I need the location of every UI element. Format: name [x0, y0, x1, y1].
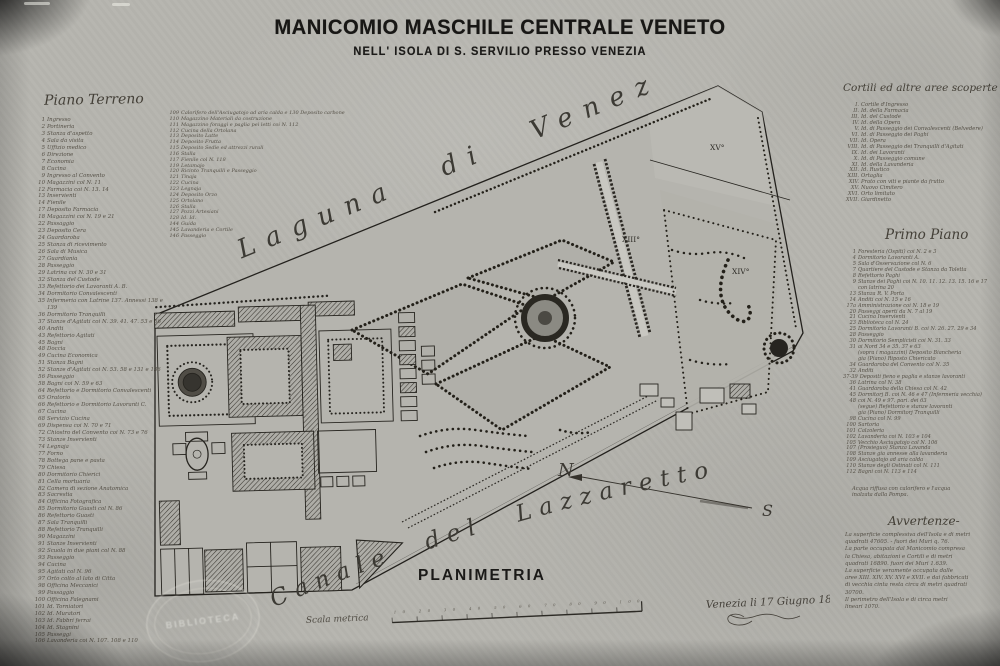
item-number: 105	[32, 632, 45, 639]
item-number: 58	[32, 381, 45, 388]
item-label: Stanze d'Agitati coi N. 53. 58 e 131 e 1…	[47, 367, 161, 374]
list-item: 94 Cucina	[32, 562, 172, 569]
list-item: 25 Stanza di ricevimento	[32, 242, 172, 249]
avvertenze-line: aree XIII. XIV. XV. XVI e XVII. e dai fa…	[845, 575, 995, 582]
list-item: 83 Sacrestia	[32, 492, 172, 499]
item-number: 98	[32, 583, 45, 590]
avvertenze-line: quadrati 47605. - fuori dei Muri q. 76.	[845, 539, 995, 546]
title-block: MANICOMIO MASCHILE CENTRALE VENETO NELL'…	[0, 15, 1000, 58]
item-number: 17	[32, 207, 45, 214]
item-label: Id. Muratori	[47, 611, 81, 618]
list-item: 28 Passeggio	[32, 263, 172, 270]
date-line: Venezia li 17 Giugno 1882	[706, 593, 830, 611]
avvertenze-line: La superficie veramente occupata dalle	[845, 568, 995, 575]
list-item: 23 Deposito Cera	[32, 228, 172, 235]
avvertenze-line: La superficie complessiva dell'Isola e d…	[845, 532, 995, 539]
item-label: Latrina coi N. 30 e 31	[47, 270, 107, 277]
piano-terreno-list: 1 Ingresso 2 Portineria 3 Stanza d'aspet…	[32, 117, 172, 645]
item-label: Magazzini coi N. 19 e 21	[47, 214, 115, 221]
item-number: 5	[32, 145, 45, 152]
list-item: 72 Chiostro del Convento coi N. 73 e 76	[32, 430, 172, 437]
item-number: 97	[32, 576, 45, 583]
item-number: 81	[32, 479, 45, 486]
item-number: 2	[32, 124, 45, 131]
item-label: Cucina	[47, 562, 66, 569]
item-number: 1	[32, 117, 45, 124]
page-subtitle: NELL' ISOLA DI S. SERVILIO PRESSO VENEZI…	[20, 46, 980, 58]
list-item: 9 Ingresso al Convento	[32, 173, 172, 180]
item-number: 26	[32, 249, 45, 256]
list-item: 33 Refettorio dei Lavoranti A. B.	[32, 284, 172, 291]
list-item: 88 Refettorio Tranquilli	[32, 527, 172, 534]
item-label: Orto colto al lato di Citta	[47, 576, 115, 583]
item-label: Refettorio e Dormitorio Lavoranti C.	[47, 402, 146, 409]
list-item: 146 Passeggio	[166, 234, 366, 240]
item-number: 93	[32, 555, 45, 562]
list-item: 40 Anditi	[32, 326, 172, 333]
stamp-text: BIBLIOTECA	[165, 611, 241, 630]
item-label: Refettorio Guasti	[47, 513, 94, 520]
list-item: 36 Dormitorio Tranquilli	[32, 312, 172, 319]
item-number: 69	[32, 423, 45, 430]
list-item: 13 Inservienti	[32, 193, 172, 200]
item-number: 66	[32, 402, 45, 409]
item-number: 9	[843, 280, 856, 286]
item-number: 31	[843, 345, 856, 351]
list-item: 93 Passeggio	[32, 555, 172, 562]
list-item: 77 Forno	[32, 451, 172, 458]
item-label: Stanza del Custode	[47, 277, 100, 284]
list-item: 12 Farmacia coi N. 13. 14	[32, 187, 172, 194]
area-label-xiv: XIV°	[732, 267, 750, 276]
list-item: 80 Dormitorio Chierici	[32, 472, 172, 479]
list-item: 97 Orto colto al lato di Citta	[32, 576, 172, 583]
item-number: 67	[32, 409, 45, 416]
item-number: 112	[843, 470, 856, 476]
item-label: Camera di sezione Anatomica	[47, 486, 128, 493]
item-number: 8	[32, 166, 45, 173]
item-number: 48	[843, 399, 856, 405]
list-item: 87 Sala Tranquilli	[32, 520, 172, 527]
item-label: Ingresso	[47, 117, 71, 124]
item-label: Agitati col N. 96	[47, 569, 91, 576]
item-label: Refettorio Tranquilli	[47, 527, 103, 534]
list-item: 112 Bagni coi N. 113 e 114	[843, 470, 995, 476]
item-label: Id. Stagnini	[47, 625, 79, 632]
nota-block: Acqua riffusa con calorifero e l'acquain…	[852, 486, 992, 499]
item-number: 48	[32, 346, 45, 353]
primo-piano-header: Primo Piano	[885, 227, 968, 243]
item-label: Bagni	[47, 340, 63, 347]
item-number: 77	[32, 451, 45, 458]
item-label: Deposito Farmacia	[47, 207, 98, 214]
list-item: 84 Officina Fotografica	[32, 499, 172, 506]
item-label: Refettorio Agitati	[47, 333, 95, 340]
avvertenze-line: 30700.	[845, 590, 995, 597]
list-item: 95 Agitati col N. 96	[32, 569, 172, 576]
item-label: Refettorio e Dormitorio Convalescenti	[47, 388, 151, 395]
item-number: 102	[32, 611, 45, 618]
item-label: Stanze dei Paghi coi N. 10. 11. 12. 13. …	[858, 280, 995, 292]
avvertenze-header: Avvertenze-	[888, 514, 960, 528]
item-number: 51	[32, 360, 45, 367]
scale-label: Scala metrica	[306, 613, 369, 626]
item-label: Uffizio medico	[47, 145, 86, 152]
list-item: 51 Stanza Bagni	[32, 360, 172, 367]
item-label: Anditi	[47, 326, 63, 333]
item-label: Farmacia coi N. 13. 14	[47, 187, 109, 194]
item-label: Passeggio	[47, 555, 74, 562]
item-number: 86	[32, 513, 45, 520]
item-label: Passaggio	[47, 590, 74, 597]
item-label: Forno	[47, 451, 63, 458]
list-item: 66 Refettorio e Dormitorio Lavoranti C.	[32, 402, 172, 409]
list-item: 79 Chiesa	[32, 465, 172, 472]
list-item: 4 Sala da visita	[32, 138, 172, 145]
item-label: Passaggio	[47, 221, 74, 228]
list-item: 90 Magazzini	[32, 534, 172, 541]
list-item: 22 Passaggio	[32, 221, 172, 228]
item-label: Passeggio	[181, 234, 206, 240]
page-title: MANICOMIO MASCHILE CENTRALE VENETO	[30, 15, 970, 40]
list-item: 3 Stanza d'aspetto	[32, 131, 172, 138]
list-item: 69 Dispensa coi N. 70 e 71	[32, 423, 172, 430]
item-number: 25	[32, 242, 45, 249]
list-item: 100 Officina Falegnami	[32, 597, 172, 604]
item-number: 103	[32, 618, 45, 625]
list-item: 14 Fienile	[32, 200, 172, 207]
item-number: 88	[32, 527, 45, 534]
item-label: Dispensa coi N. 70 e 71	[47, 423, 111, 430]
item-number: 73	[32, 437, 45, 444]
cortili-header: Cortili ed altre aree scoperte	[843, 82, 998, 94]
list-item: 78 Bottega pane e pasta	[32, 458, 172, 465]
item-number: 100	[32, 597, 45, 604]
item-number: 87	[32, 520, 45, 527]
item-label: Officina Falegnami	[47, 597, 99, 604]
item-number: 6	[32, 152, 45, 159]
avvertenze-line: la Chiesa, abitazioni e Cortili e di met…	[845, 554, 995, 561]
item-label: Cucina Economica	[47, 353, 98, 360]
item-number: 37	[32, 319, 45, 326]
photo-artifact	[112, 3, 130, 6]
item-number: 7	[32, 159, 45, 166]
item-label: Dormitorio Guasti col N. 86	[47, 506, 122, 513]
item-number: 49	[32, 353, 45, 360]
list-item: 29 Latrina coi N. 30 e 31	[32, 270, 172, 277]
item-number: 79	[32, 465, 45, 472]
item-label: Passeggi	[47, 632, 71, 639]
avvertenze-line: lineari 1070.	[845, 604, 995, 611]
item-label: Magazzini col N. 11	[47, 180, 101, 187]
list-item: 5 Uffizio medico	[32, 145, 172, 152]
item-number: 92	[32, 548, 45, 555]
item-label: Giardinetto	[861, 198, 891, 204]
item-label: Ingresso al Convento	[47, 173, 105, 180]
list-item: 17 Deposito Farmacia	[32, 207, 172, 214]
item-number: 104	[32, 625, 45, 632]
item-label: Portineria	[47, 124, 74, 131]
item-label: Dormitorio Convalescenti	[47, 291, 117, 298]
item-number: 80	[32, 472, 45, 479]
item-number: 24	[32, 235, 45, 242]
item-number: 64	[32, 388, 45, 395]
item-number: 99	[32, 590, 45, 597]
list-item: 10 Magazzini col N. 11	[32, 180, 172, 187]
avvertenze-line: Il perimetro dell'Isola e di circa metri	[845, 597, 995, 604]
item-label: Economia	[47, 159, 74, 166]
item-number: 43	[32, 333, 45, 340]
list-item: 18 Magazzini coi N. 19 e 21	[32, 214, 172, 221]
list-item: 74 Legnaja	[32, 444, 172, 451]
item-label: Stanze d'Agitati coi N. 39. 41. 47. 53 e…	[47, 319, 161, 326]
item-label: Officina Meccanici	[47, 583, 98, 590]
item-number: 27	[32, 256, 45, 263]
photographed-document: MANICOMIO MASCHILE CENTRALE VENETO NELL'…	[0, 0, 1000, 666]
document-paper: MANICOMIO MASCHILE CENTRALE VENETO NELL'…	[0, 0, 1000, 666]
item-number: 52	[32, 367, 45, 374]
list-item: 91 Stanze Inservienti	[32, 541, 172, 548]
item-label: Cucina	[47, 166, 66, 173]
item-label: Fienile	[47, 200, 66, 207]
list-item: 81 Cella mortuaria	[32, 479, 172, 486]
list-item: 27 Guardiania	[32, 256, 172, 263]
avvertenze-line: La parte occupata dal Manicomio compresa	[845, 546, 995, 553]
list-item: 86 Refettorio Guasti	[32, 513, 172, 520]
item-number: 29	[32, 270, 45, 277]
item-label: Direzione	[47, 152, 73, 159]
item-label: Officina Fotografica	[47, 499, 101, 506]
item-label: Bottega pane e pasta	[47, 458, 105, 465]
item-number: 34	[32, 291, 45, 298]
item-label: Sacrestia	[47, 492, 73, 499]
list-item: 52 Stanze d'Agitati coi N. 53. 58 e 131 …	[32, 367, 172, 374]
list-item: 49 Cucina Economica	[32, 353, 172, 360]
list-item: 6 Direzione	[32, 152, 172, 159]
item-label: Infermeria con Latrine 137. Annessi 138 …	[47, 298, 172, 312]
scale-bar: 10 20 30 40 50 60 70 80 90 100	[392, 598, 642, 622]
item-number: 68	[32, 416, 45, 423]
list-item: 37 Stanze d'Agitati coi N. 39. 41. 47. 5…	[32, 319, 172, 326]
primo-piano-list: 1 Foresteria (Ospiti) coi N. 2 e 3 4 Dor…	[843, 250, 995, 476]
item-number: 12	[32, 187, 45, 194]
item-number: XVII.	[843, 198, 859, 204]
item-label: Cella mortuaria	[47, 479, 90, 486]
list-item: 68 Servizio Cucina	[32, 416, 172, 423]
list-item: 73 Stanze Inservienti	[32, 437, 172, 444]
item-label: Id. Fabbri ferrai	[47, 618, 91, 625]
item-number: 90	[32, 534, 45, 541]
avvertenze-block: La superficie complessiva dell'Isola e d…	[845, 532, 995, 611]
item-number: 10	[32, 180, 45, 187]
list-item: 58 Bagni coi N. 59 e 63	[32, 381, 172, 388]
item-label: Oratorio	[47, 395, 70, 402]
north-label: N	[557, 460, 575, 481]
item-number: 4	[32, 138, 45, 145]
item-number: 91	[32, 541, 45, 548]
item-label: Stanze Inservienti	[47, 541, 97, 548]
item-number: 36	[32, 312, 45, 319]
item-label: Stanza d'aspetto	[47, 131, 92, 138]
list-item: 98 Officina Meccanici	[32, 583, 172, 590]
area-label-xiii: XIII°	[622, 235, 640, 244]
list-item: 45 Bagni	[32, 340, 172, 347]
list-item: XVII. Giardinetto	[843, 198, 999, 204]
item-number: 9	[32, 173, 45, 180]
list-item: 65 Oratorio	[32, 395, 172, 402]
item-number: 35	[32, 298, 45, 305]
item-label: Dormitorio Chierici	[47, 472, 100, 479]
item-number: 72	[32, 430, 45, 437]
item-number: 56	[32, 374, 45, 381]
item-number: 13	[32, 193, 45, 200]
item-label: Refettorio dei Lavoranti A. B.	[47, 284, 127, 291]
item-number: 78	[32, 458, 45, 465]
item-label: Sala da visita	[47, 138, 84, 145]
item-label: Deposito Cera	[47, 228, 86, 235]
item-label: Passeggio	[47, 263, 74, 270]
area-label-xv: XV°	[710, 143, 725, 152]
item-label: Bagni coi N. 113 e 114	[858, 470, 917, 476]
item-label: Id. Torniatori	[47, 604, 83, 611]
list-item: 48 Doccia	[32, 346, 172, 353]
item-number: 101	[32, 604, 45, 611]
list-item: 35 Infermeria con Latrine 137. Annessi 1…	[32, 298, 172, 312]
item-label: Doccia	[47, 346, 66, 353]
item-label: Dormitorio Tranquilli	[47, 312, 105, 319]
item-label: Stanze Inservienti	[47, 437, 97, 444]
item-label: Stanza di ricevimento	[47, 242, 107, 249]
south-label: S	[762, 501, 773, 520]
list-item: 7 Economia	[32, 159, 172, 166]
item-number: 28	[32, 263, 45, 270]
cortili-list: I. Cortile d'Ingresso II. Id. della Farm…	[843, 103, 999, 204]
list-item: 64 Refettorio e Dormitorio Convalescenti	[32, 388, 172, 395]
item-number: 94	[32, 562, 45, 569]
item-label: Scuola in due piani col N. 88	[47, 548, 125, 555]
item-number: 40	[32, 326, 45, 333]
list-item: 85 Dormitorio Guasti col N. 86	[32, 506, 172, 513]
nota-line: inalzata dalla Pompa.	[852, 492, 992, 498]
item-number: 146	[166, 234, 179, 240]
item-label: Stanza Bagni	[47, 360, 83, 367]
list-item: 67 Cucina	[32, 409, 172, 416]
list-item: 43 Refettorio Agitati	[32, 333, 172, 340]
photo-artifact	[24, 2, 50, 5]
item-label: Sala di Musica	[47, 249, 87, 256]
item-number: 84	[32, 499, 45, 506]
item-number: 65	[32, 395, 45, 402]
item-label: Chiostro del Convento coi N. 73 e 76	[47, 430, 148, 437]
list-item: 32 Stanza del Custode	[32, 277, 172, 284]
item-number: 22	[32, 221, 45, 228]
item-label: Guardaroba	[47, 235, 80, 242]
list-item: 92 Scuola in due piani col N. 88	[32, 548, 172, 555]
item-number: 82	[32, 486, 45, 493]
list-item: 2 Portineria	[32, 124, 172, 131]
item-label: Sala Tranquilli	[47, 520, 87, 527]
item-label: Servizio Cucina	[47, 416, 90, 423]
item-number: 106	[32, 638, 45, 645]
item-number: 23	[32, 228, 45, 235]
list-item: 9 Stanze dei Paghi coi N. 10. 11. 12. 13…	[843, 280, 995, 292]
item-label: Legnaja	[47, 444, 69, 451]
item-number: 33	[32, 284, 45, 291]
item-number: 85	[32, 506, 45, 513]
item-number: 83	[32, 492, 45, 499]
list-item: 82 Camera di sezione Anatomica	[32, 486, 172, 493]
item-number: 18	[32, 214, 45, 221]
list-item: 26 Sala di Musica	[32, 249, 172, 256]
list-item: 1 Ingresso	[32, 117, 172, 124]
item-number: 14	[32, 200, 45, 207]
signature-block: Venezia li 17 Giugno 1882	[706, 593, 830, 625]
list-item: 24 Guardaroba	[32, 235, 172, 242]
item-label: Bagni coi N. 59 e 63	[47, 381, 102, 388]
item-label: Guardiania	[47, 256, 77, 263]
item-label: Chiesa	[47, 465, 66, 472]
item-number: 45	[32, 340, 45, 347]
item-label: Inservienti	[47, 193, 76, 200]
list-item: 99 Passaggio	[32, 590, 172, 597]
avvertenze-line: quadrati 16890. fuori dei Muri 1.639.	[845, 561, 995, 568]
planimetria-label: PLANIMETRIA	[418, 567, 546, 584]
item-number: 3	[32, 131, 45, 138]
item-label: Lavanderia coi N. 107. 108 e 110	[47, 638, 138, 645]
item-label: Cucina	[47, 409, 66, 416]
item-number: 74	[32, 444, 45, 451]
item-number: 32	[32, 277, 45, 284]
avvertenze-line: di vecchia cinta resta circa di metri qu…	[845, 582, 995, 589]
list-item: 56 Passeggio	[32, 374, 172, 381]
item-label: Passeggio	[47, 374, 74, 381]
item-label: Magazzini	[47, 534, 75, 541]
piano-terreno-list-col2: 109 Calorifero dell'Asciugatojo ad aria …	[166, 111, 366, 240]
list-item: 34 Dormitorio Convalescenti	[32, 291, 172, 298]
item-number: 95	[32, 569, 45, 576]
list-item: 8 Cucina	[32, 166, 172, 173]
